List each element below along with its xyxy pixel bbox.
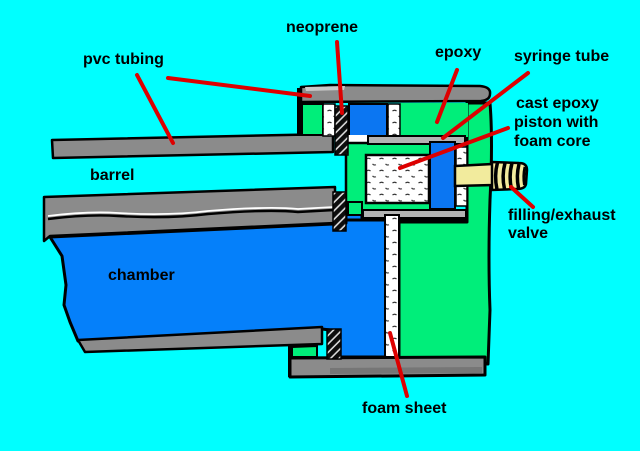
- svg-text:epoxy: epoxy: [435, 44, 481, 61]
- svg-text:barrel: barrel: [90, 167, 134, 184]
- svg-text:piston with: piston with: [514, 114, 598, 131]
- svg-text:neoprene: neoprene: [286, 19, 358, 36]
- svg-text:valve: valve: [508, 225, 548, 242]
- svg-text:chamber: chamber: [108, 267, 175, 284]
- svg-text:pvc tubing: pvc tubing: [83, 51, 164, 68]
- svg-text:foam core: foam core: [514, 133, 591, 150]
- svg-text:syringe tube: syringe tube: [514, 48, 609, 65]
- svg-text:foam sheet: foam sheet: [362, 400, 447, 417]
- svg-text:filling/exhaust: filling/exhaust: [508, 207, 616, 224]
- svg-text:cast epoxy: cast epoxy: [516, 95, 599, 112]
